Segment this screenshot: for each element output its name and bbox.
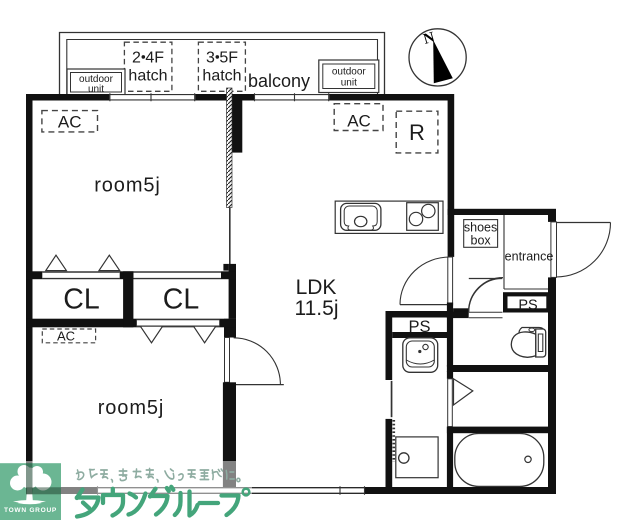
svg-text:R: R (409, 120, 425, 145)
svg-text:LDK: LDK (296, 276, 337, 299)
svg-text:room5j: room5j (98, 397, 165, 419)
svg-text:TOWN GROUP: TOWN GROUP (4, 507, 57, 514)
svg-text:PS: PS (408, 318, 430, 336)
svg-text:AC: AC (58, 113, 82, 132)
svg-text:AC: AC (347, 112, 371, 131)
svg-text:room5j: room5j (94, 175, 161, 197)
svg-text:11.5j: 11.5j (295, 297, 339, 320)
svg-text:3 5F: 3 5F (206, 50, 238, 67)
svg-text:balcony: balcony (248, 71, 310, 91)
svg-text:entrance: entrance (505, 250, 554, 264)
svg-text:CL: CL (163, 284, 199, 316)
svg-text:box: box (471, 234, 492, 248)
svg-text:CL: CL (63, 284, 99, 316)
svg-text:PS: PS (518, 298, 537, 314)
svg-text:AC: AC (57, 329, 75, 344)
svg-text:shoes: shoes (464, 221, 497, 235)
svg-text:outdoor: outdoor (332, 67, 367, 78)
svg-text:hatch: hatch (128, 68, 167, 85)
svg-text:hatch: hatch (202, 68, 241, 85)
svg-text:unit: unit (88, 84, 104, 95)
svg-text:unit: unit (341, 78, 357, 89)
svg-text:2 4F: 2 4F (132, 50, 164, 67)
